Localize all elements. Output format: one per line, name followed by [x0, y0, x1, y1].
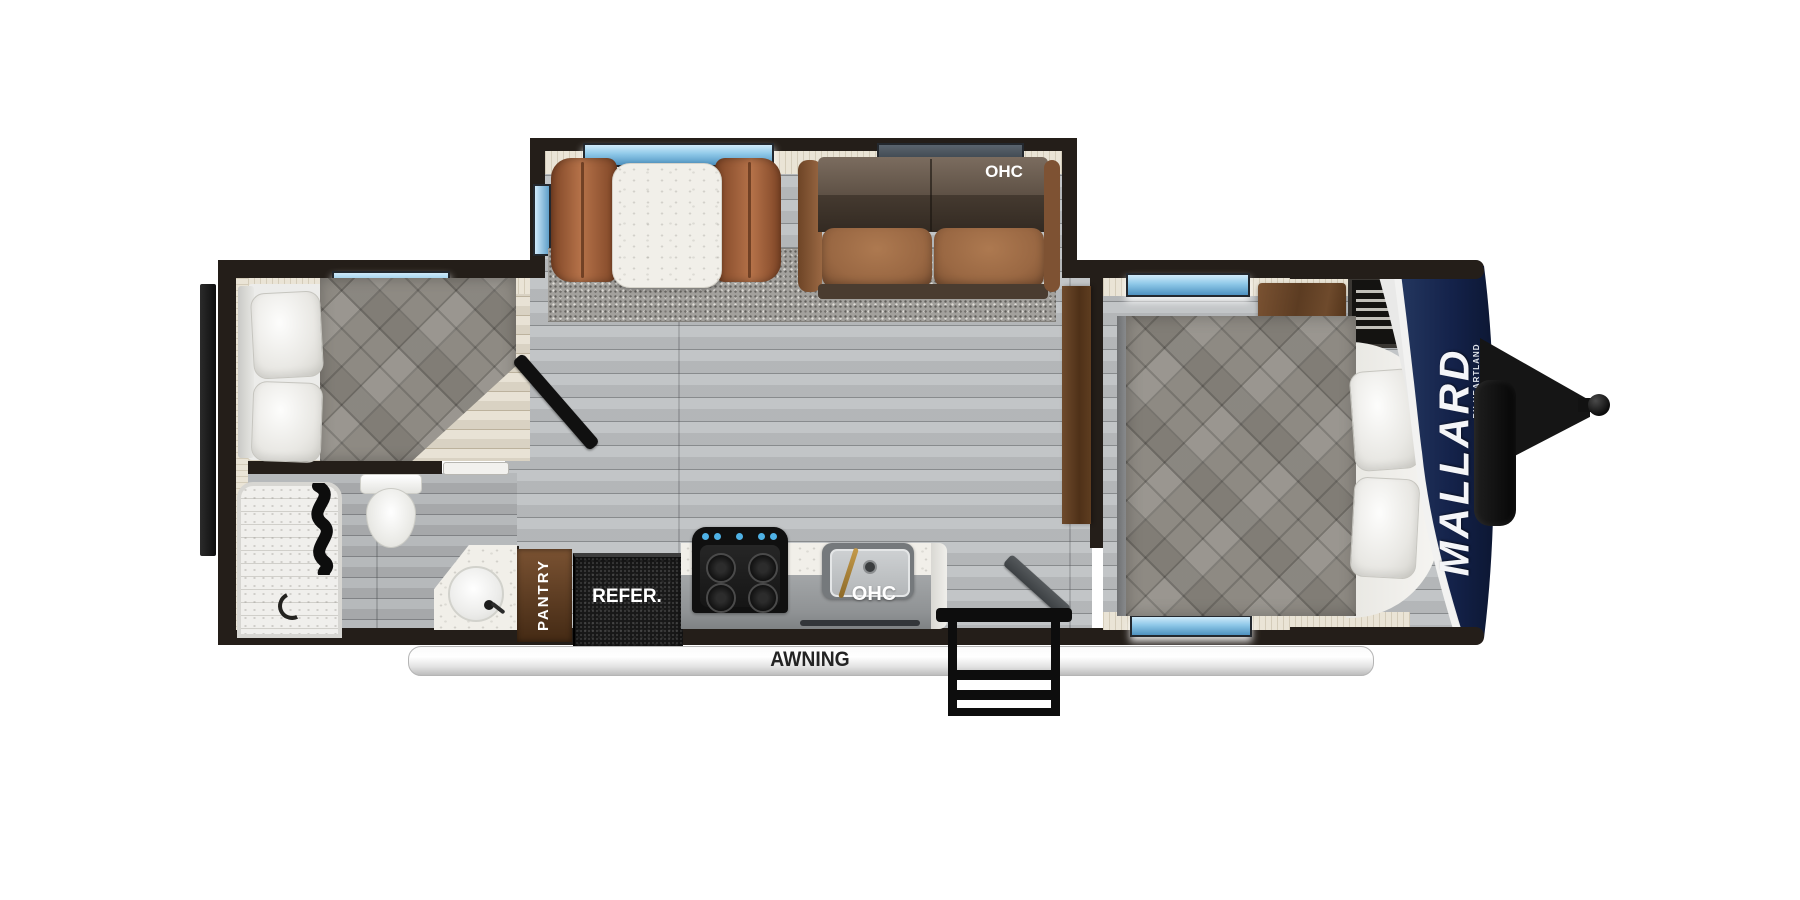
curtain-squiggle [317, 486, 327, 573]
sofa-back-lower [818, 195, 1048, 232]
entry-steps-rung-3 [948, 708, 1060, 716]
sofa-base [818, 284, 1048, 299]
bathroom-door [443, 462, 509, 475]
sofa-seat-cushion-left [822, 228, 932, 288]
stove-knob-2 [714, 533, 721, 540]
bedroom-divider-wall [1090, 278, 1103, 548]
queen-bed-comforter [1126, 316, 1356, 616]
rear-wall [218, 260, 236, 645]
slideout-side-window [533, 184, 551, 256]
dinette-table [612, 163, 722, 288]
entry-steps-right-post [1051, 618, 1060, 716]
stove-knob-3 [736, 533, 743, 540]
hitch-ball-icon [1588, 394, 1610, 416]
stove-burner-2 [748, 553, 778, 583]
stove-knob-4 [758, 533, 765, 540]
bedroom-top-window [1126, 273, 1250, 297]
awning-label: AWNING [735, 648, 886, 672]
pantry-label: PANTRY [534, 545, 554, 645]
rear-bumper [200, 284, 216, 556]
cap-top-trim [1290, 262, 1484, 279]
entertainment-cabinet [1062, 286, 1091, 524]
stove-burner-1 [706, 553, 736, 583]
entry-steps-left-post [948, 618, 957, 716]
sofa-back-seam [930, 159, 932, 231]
bunk-pillow-bottom [251, 381, 324, 463]
bathroom-sink-basin [448, 566, 504, 622]
entry-steps-rung-1 [955, 670, 1053, 680]
bedroom-bottom-window [1130, 615, 1252, 637]
dinette-bench-left-seam [581, 162, 584, 278]
sofa-ohc-label: OHC [972, 162, 1036, 181]
dinette-bench-right-seam [748, 162, 751, 278]
stove-burner-4 [748, 583, 778, 613]
stove-knob-1 [702, 533, 709, 540]
floorplan-canvas: OHC PANTRY REFER. OHC [0, 0, 1800, 900]
kitchen-sink-drain [863, 560, 877, 574]
entry-steps-rung-2 [955, 690, 1053, 700]
bunk-bath-divider-wall [220, 461, 442, 474]
stove-burner-3 [706, 583, 736, 613]
shower-curtain-icon [304, 483, 348, 575]
propane-tank-cover [1474, 380, 1516, 526]
dinette-bench-left [551, 158, 617, 282]
refrigerator-label: REFER. [574, 586, 680, 608]
kitchen-ohc-label: OHC [842, 583, 906, 606]
slideout-right-wall [1062, 138, 1077, 278]
sofa-armrest-right [1044, 160, 1060, 292]
stove-knob-5 [770, 533, 777, 540]
cap-bottom-trim [1290, 627, 1484, 644]
sofa-seat-cushion-right [934, 228, 1044, 288]
awning-bar [408, 646, 1374, 676]
bunk-pillow-top [250, 290, 324, 380]
kitchen-drawer-handle [800, 620, 920, 626]
